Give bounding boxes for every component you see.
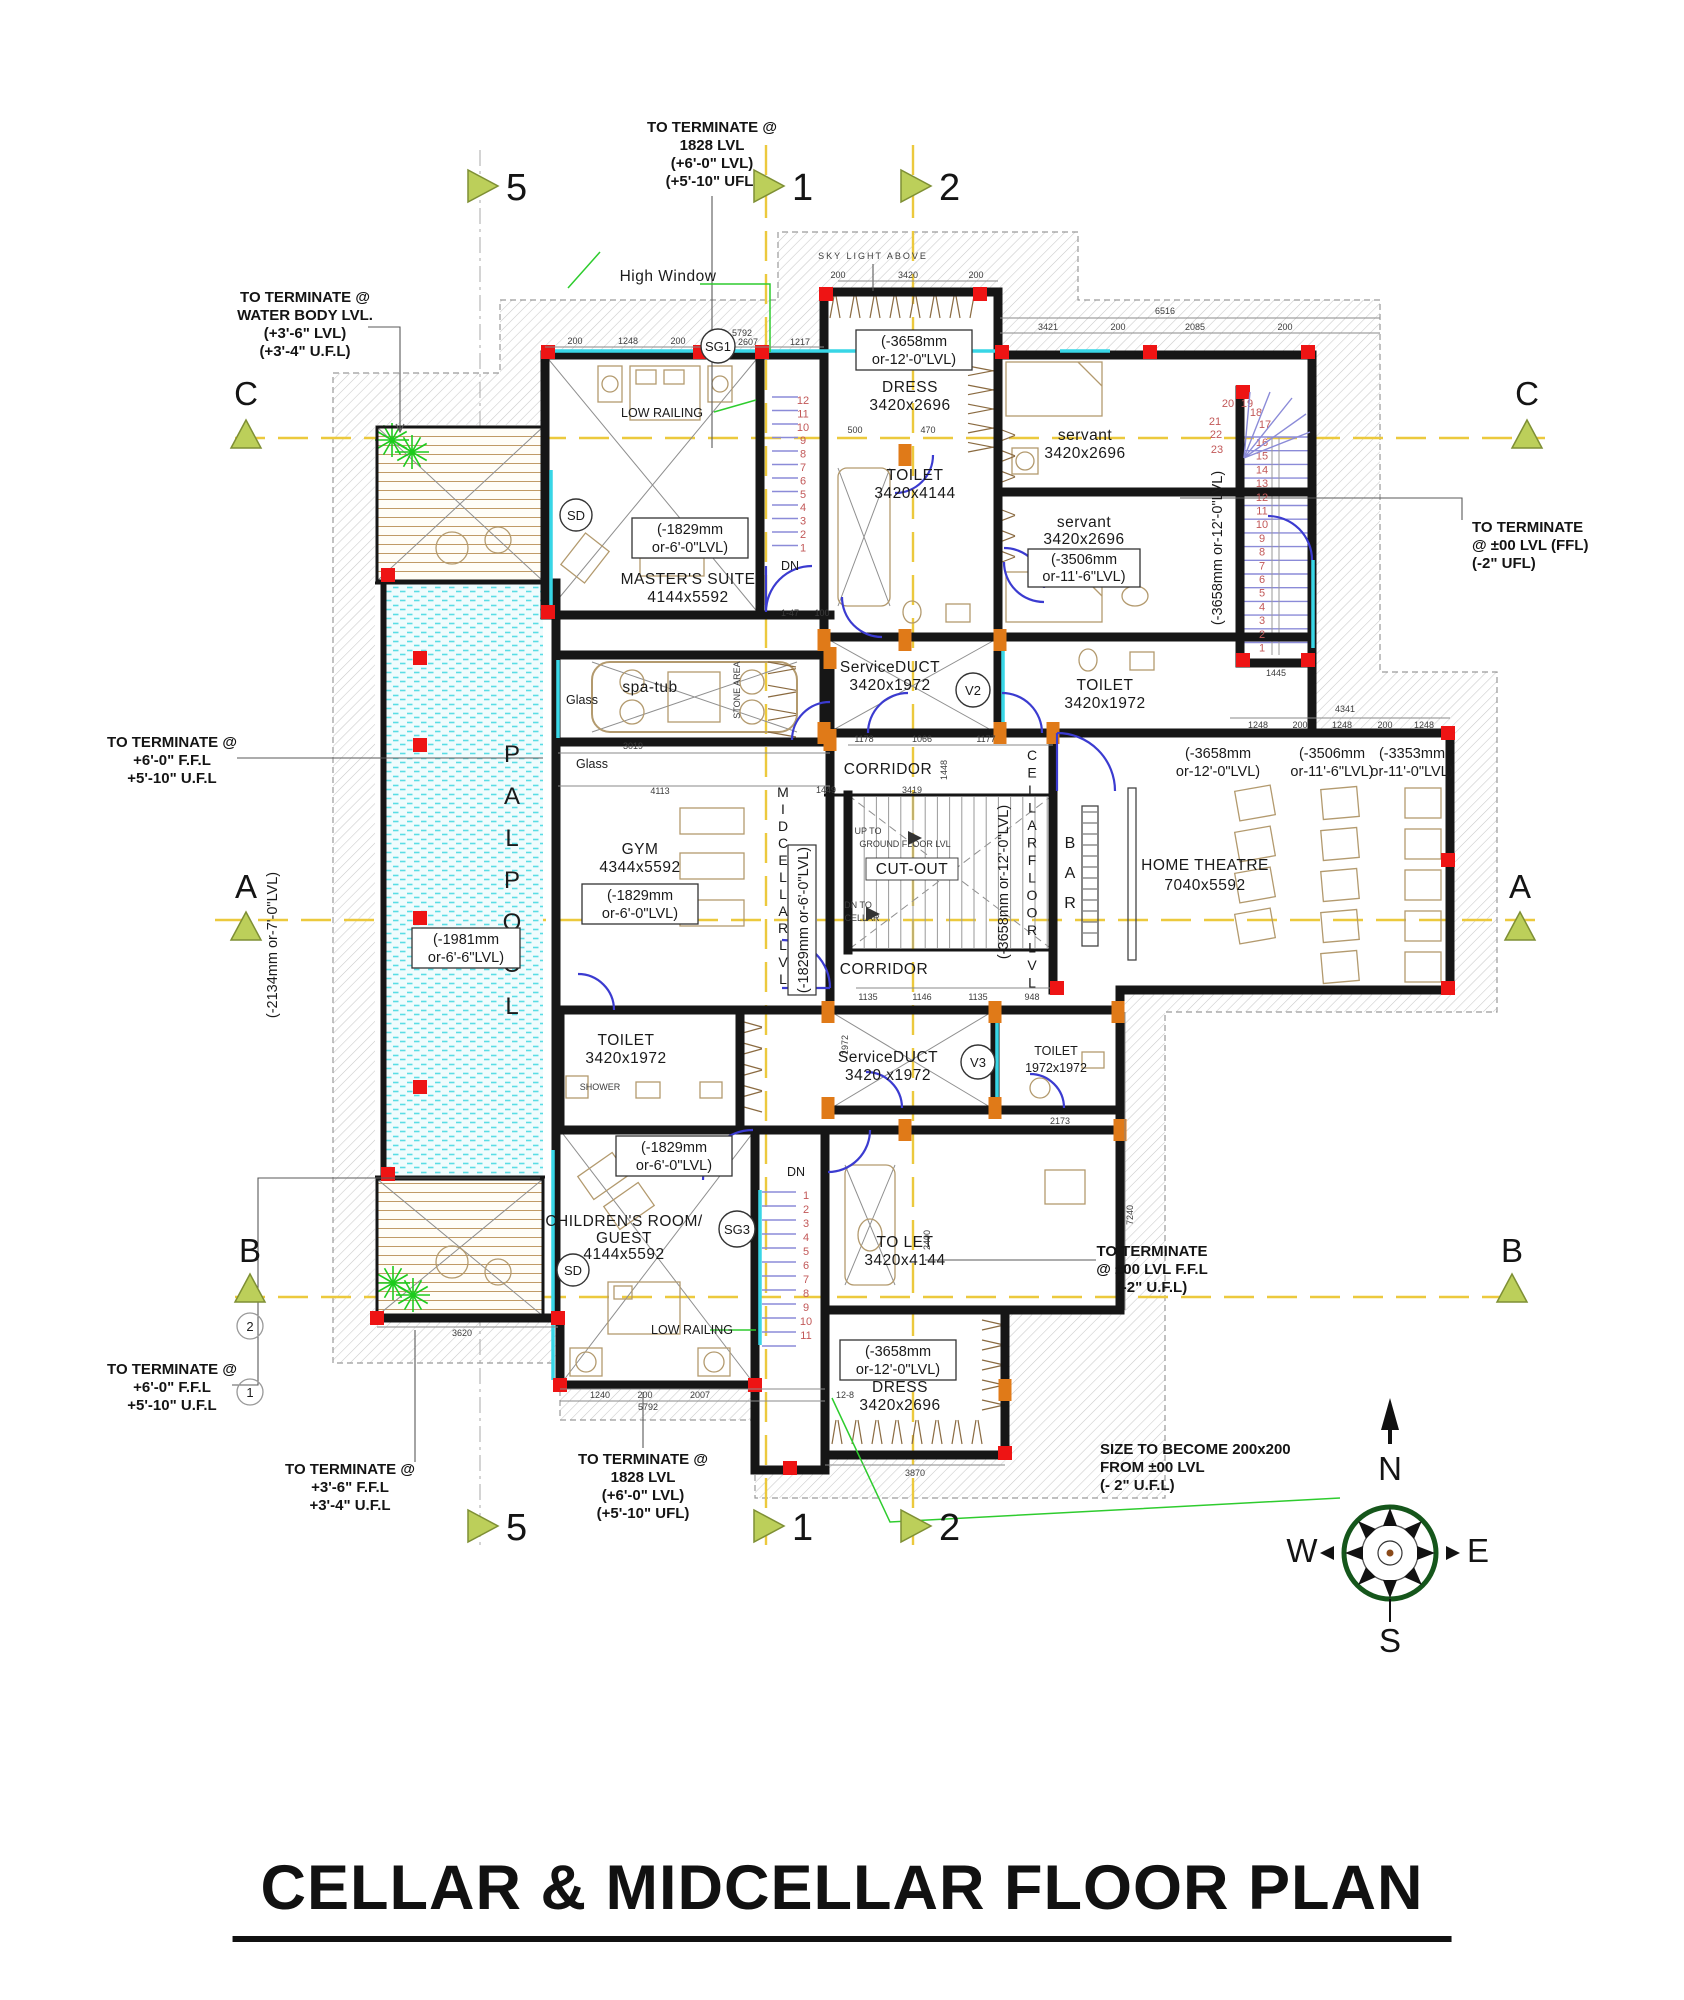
label-toilet-v3: TOILET bbox=[1034, 1044, 1078, 1058]
dim: 3420 bbox=[898, 270, 918, 280]
label-dress-bottom: DRESS bbox=[872, 1379, 928, 1396]
winder-20: 20 bbox=[1222, 398, 1234, 410]
lvl-gym-1: (-1829mm bbox=[607, 888, 673, 904]
dim: 200 bbox=[1292, 720, 1307, 730]
grid-row-c-right: C bbox=[1515, 375, 1539, 412]
ann-size-3: (- 2" U.F.L) bbox=[1100, 1477, 1175, 1494]
dim: 2607 bbox=[738, 337, 758, 347]
dim: 1248 bbox=[618, 336, 638, 346]
label-toilet-mid-dim: 3420x1972 bbox=[1064, 695, 1145, 712]
label-stone-area: STONE AREA bbox=[732, 661, 742, 718]
label-dress-top-dim: 3420x2696 bbox=[869, 397, 950, 414]
grid-col-1-bottom: 1 bbox=[792, 1507, 813, 1549]
label-servant2-dim: 3420x2696 bbox=[1043, 531, 1124, 548]
dim: 1135 bbox=[968, 992, 987, 1002]
label-children-room: CHILDREN'S ROOM/ bbox=[545, 1213, 703, 1230]
dim: 948 bbox=[1024, 992, 1039, 1002]
dim: 3870 bbox=[905, 1468, 925, 1478]
ann-1828-top-4: (+5'-10" UFL) bbox=[666, 173, 759, 190]
lvl-dress-bottom-1: (-3658mm bbox=[865, 1344, 931, 1360]
label-glass-1: Glass bbox=[566, 693, 598, 707]
dim: 4113 bbox=[650, 786, 669, 796]
dim: 12-8 bbox=[836, 1390, 854, 1400]
dim: 2007 bbox=[690, 1390, 710, 1400]
label-up-to-2: GROUND FLOOR LVL bbox=[859, 839, 950, 849]
label-servant2: servant bbox=[1057, 514, 1112, 531]
grid-col-1-top: 1 bbox=[792, 167, 813, 209]
grid-col-5-bottom: 5 bbox=[506, 1507, 527, 1549]
label-children-room2: GUEST bbox=[596, 1230, 652, 1247]
ann-rb00-3: (-2" U.F.L) bbox=[1117, 1279, 1187, 1296]
ann-6ft-mid-1: TO TERMINATE @ bbox=[107, 734, 237, 751]
lvl-dress-bottom-2: or-12'-0"LVL) bbox=[856, 1362, 940, 1378]
label-dn-upper: DN bbox=[781, 559, 799, 573]
label-corridor-lower: CORRIDOR bbox=[840, 961, 928, 978]
ann-1828-bot-1: TO TERMINATE @ bbox=[578, 1451, 708, 1468]
label-dress-top: DRESS bbox=[882, 379, 938, 396]
drawing-title: CELLAR & MIDCELLAR FLOOR PLAN bbox=[233, 1852, 1452, 1942]
dim: 200 bbox=[968, 270, 983, 280]
ann-size-1: SIZE TO BECOME 200x200 bbox=[1100, 1441, 1291, 1458]
ann-right00-3: (-2" UFL) bbox=[1472, 555, 1536, 572]
ann-right00-1: TO TERMINATE bbox=[1472, 519, 1583, 536]
compass: N W E S bbox=[1286, 1398, 1489, 1659]
label-up-to-1: UP TO bbox=[854, 826, 881, 836]
bar-letters: BAR bbox=[1064, 835, 1076, 912]
lvl-dress-top-2: or-12'-0"LVL) bbox=[872, 352, 956, 368]
ann-water-3: (+3'-6" LVL) bbox=[264, 325, 347, 342]
label-sd-bottom: SD bbox=[564, 1263, 582, 1278]
label-gym: GYM bbox=[622, 841, 659, 858]
dim: 1178 bbox=[854, 734, 873, 744]
label-servant1-dim: 3420x2696 bbox=[1044, 445, 1125, 462]
winder-17: 17 bbox=[1259, 419, 1271, 431]
lvl-gym-2: or-6'-0"LVL) bbox=[602, 906, 678, 922]
dim: 200 bbox=[637, 1390, 652, 1400]
lvl-theatre1-2: or-12'-0"LVL) bbox=[1176, 764, 1260, 780]
dim: 1248 bbox=[1248, 720, 1268, 730]
grid-row-b-right: B bbox=[1501, 1232, 1523, 1269]
ann-water-1: TO TERMINATE @ bbox=[240, 289, 370, 306]
dim: 3421 bbox=[1038, 322, 1058, 332]
dim: 1135 bbox=[858, 992, 877, 1002]
label-high-window: High Window bbox=[620, 268, 717, 285]
label-sg3: SG3 bbox=[724, 1222, 750, 1237]
grid-row-a-left: A bbox=[235, 868, 257, 905]
label-sd-top: SD bbox=[567, 508, 585, 523]
ann-rb00-1: TO TERMINATE bbox=[1096, 1243, 1207, 1260]
lvl-theatre2-1: (-3506mm bbox=[1299, 746, 1365, 762]
dim: 200 bbox=[670, 336, 685, 346]
dim: 200 bbox=[1377, 720, 1392, 730]
lvl-pool-left-rot: (-2134mm or-7'-0"LVL) bbox=[265, 872, 281, 1018]
label-sky-light: SKY LIGHT ABOVE bbox=[818, 251, 928, 261]
ann-1828-bot-4: (+5'-10" UFL) bbox=[597, 1505, 690, 1522]
dim: 1248 bbox=[1332, 720, 1352, 730]
label-toilet-top-dim: 3420x4144 bbox=[874, 485, 955, 502]
label-gym-dim: 4344x5592 bbox=[599, 859, 680, 876]
winder-21: 21 bbox=[1209, 416, 1221, 428]
dim: 3620 bbox=[452, 1328, 472, 1338]
grid-col-5-top: 5 bbox=[506, 167, 527, 209]
ann-1828-top-3: (+6'-0" LVL) bbox=[671, 155, 754, 172]
floor-plan-drawing: PALPOOL BAR CELLARFLOORLVL MIDCELLARLVL … bbox=[0, 0, 1684, 2000]
label-serviceduct-top: ServiceDUCT bbox=[840, 659, 940, 676]
dim: 3019 bbox=[623, 741, 643, 751]
label-master-suite: MASTER'S SUITE bbox=[621, 571, 756, 588]
label-toilet-mid: TOILET bbox=[1077, 677, 1134, 694]
grid-row-a-right: A bbox=[1509, 868, 1531, 905]
dim: 1448 bbox=[939, 760, 949, 780]
label-servant1: servant bbox=[1058, 427, 1113, 444]
lvl-theatre3-1: (-3353mm bbox=[1379, 746, 1445, 762]
dim: 200 bbox=[567, 336, 582, 346]
ann-water-2: WATER BODY LVL. bbox=[237, 307, 373, 324]
label-v3: V3 bbox=[970, 1055, 986, 1070]
dim: 1972 bbox=[840, 1035, 850, 1055]
lvl-stairs-rot: (-3658mm or-12'-0"LVL) bbox=[1210, 471, 1226, 625]
dim: 100 bbox=[814, 608, 829, 618]
compass-n: N bbox=[1378, 1450, 1402, 1487]
ann-6ft-bot-1: TO TERMINATE @ bbox=[107, 1361, 237, 1378]
dim: 200 bbox=[1277, 322, 1292, 332]
dim: 1248 bbox=[1414, 720, 1434, 730]
label-spa-tub: spa-tub bbox=[622, 679, 677, 696]
ann-36-1: TO TERMINATE @ bbox=[285, 1461, 415, 1478]
label-toilet-bottom: TOILET bbox=[598, 1032, 655, 1049]
ann-1828-bot-3: (+6'-0" LVL) bbox=[602, 1487, 685, 1504]
label-serviceduct-top-dim: 3420x1972 bbox=[849, 677, 930, 694]
compass-e: E bbox=[1467, 1532, 1489, 1569]
lvl-children-2: or-6'-0"LVL) bbox=[636, 1158, 712, 1174]
compass-w: W bbox=[1286, 1532, 1318, 1569]
winder-19: 19 bbox=[1241, 398, 1253, 410]
dim: 200 bbox=[1110, 322, 1125, 332]
ann-6ft-mid-3: +5'-10" U.F.L bbox=[127, 770, 216, 787]
lvl-pool-2: or-6'-6"LVL) bbox=[428, 950, 504, 966]
grid-col-2-top: 2 bbox=[939, 167, 960, 209]
ann-6ft-mid-2: +6'-0" F.F.L bbox=[133, 752, 211, 769]
grid-col-2-bottom: 2 bbox=[939, 1507, 960, 1549]
ann-36-3: +3'-4" U.F.L bbox=[309, 1497, 390, 1514]
floor-plan-page: PALPOOL BAR CELLARFLOORLVL MIDCELLARLVL … bbox=[0, 0, 1684, 2000]
ann-rb00-2: @ ±00 LVL F.F.L bbox=[1096, 1261, 1208, 1278]
dim: 3419 bbox=[902, 785, 922, 795]
ann-water-4: (+3'-4" U.F.L) bbox=[259, 343, 350, 360]
lvl-midcell-rot: (-1829mm or-6'-0"LVL) bbox=[796, 847, 812, 993]
label-dn-lower: DN bbox=[787, 1165, 805, 1179]
dim: 1177 bbox=[976, 734, 995, 744]
label-serviceduct-bottom: ServiceDUCT bbox=[838, 1049, 938, 1066]
dim: 1066 bbox=[912, 734, 932, 744]
label-glass-2: Glass bbox=[576, 757, 608, 771]
dim: 6516 bbox=[1155, 306, 1175, 316]
dim: 1146 bbox=[912, 992, 931, 1002]
dim: 2400 bbox=[922, 1230, 932, 1250]
label-dress-bottom-dim: 3420x2696 bbox=[859, 1397, 940, 1414]
dim: 500 bbox=[847, 425, 862, 435]
dim: 1449 bbox=[816, 785, 836, 795]
winder-23: 23 bbox=[1211, 444, 1223, 456]
dim: 1217 bbox=[790, 337, 810, 347]
label-low-railing-bottom: LOW RAILING bbox=[651, 1323, 733, 1337]
label-to-let-dim: 3420x4144 bbox=[864, 1252, 945, 1269]
label-shower: SHOWER bbox=[580, 1082, 621, 1092]
cellar-floor-lvl-letters: CELLARFLOORLVL bbox=[1027, 747, 1038, 991]
dim: 5792 bbox=[638, 1402, 658, 1412]
dim: 7240 bbox=[1125, 1205, 1135, 1225]
ann-right00-2: @ ±00 LVL (FFL) bbox=[1472, 537, 1588, 554]
dim: 2173 bbox=[1050, 1116, 1070, 1126]
lvl-dress-top-1: (-3658mm bbox=[881, 334, 947, 350]
ann-36-2: +3'-6" F.F.L bbox=[311, 1479, 389, 1496]
compass-s: S bbox=[1379, 1622, 1401, 1659]
dim: 1445 bbox=[1266, 668, 1286, 678]
ann-1828-bot-2: 1828 LVL bbox=[611, 1469, 676, 1486]
label-children-room-dim: 4144x5592 bbox=[583, 1246, 664, 1263]
label-sg1: SG1 bbox=[705, 339, 731, 354]
lvl-theatre1-1: (-3658mm bbox=[1185, 746, 1251, 762]
ann-6ft-bot-2: +6'-0" F.F.L bbox=[133, 1379, 211, 1396]
lvl-master-2: or-6'-0"LVL) bbox=[652, 540, 728, 556]
dim: 200 bbox=[830, 270, 845, 280]
winder-22: 22 bbox=[1210, 429, 1222, 441]
ann-1828-top-1: TO TERMINATE @ bbox=[647, 119, 777, 136]
lvl-children-1: (-1829mm bbox=[641, 1140, 707, 1156]
label-corridor-upper: CORRIDOR bbox=[844, 761, 932, 778]
label-home-theatre-dim: 7040x5592 bbox=[1164, 877, 1245, 894]
lvl-theatre3-2: or-11'-0"LVL) bbox=[1370, 764, 1453, 780]
lvl-servant2-1: (-3506mm bbox=[1051, 552, 1117, 568]
grid-row-b-left: B bbox=[239, 1232, 261, 1269]
label-cut-out: CUT-OUT bbox=[876, 861, 948, 878]
lvl-theatre2-2: or-11'-6"LVL) bbox=[1290, 764, 1373, 780]
lvl-cellar-rot: (-3658mm or-12'-0"LVL) bbox=[996, 805, 1012, 959]
dim: 4341 bbox=[1335, 704, 1355, 714]
grid-circle-2: 2 bbox=[246, 1319, 253, 1334]
lvl-pool-1: (-1981mm bbox=[433, 932, 499, 948]
label-low-railing-top: LOW RAILING bbox=[621, 406, 703, 420]
label-serviceduct-bottom-dim: 3420 x1972 bbox=[845, 1067, 931, 1084]
grid-row-c-left: C bbox=[234, 375, 258, 412]
dim: 2085 bbox=[1185, 322, 1205, 332]
label-toilet-bottom-dim: 3420x1972 bbox=[585, 1050, 666, 1067]
dim: 1-47 bbox=[781, 608, 799, 618]
label-home-theatre: HOME THEATRE bbox=[1141, 857, 1269, 874]
dim: 470 bbox=[920, 425, 935, 435]
ann-6ft-bot-3: +5'-10" U.F.L bbox=[127, 1397, 216, 1414]
label-master-suite-dim: 4144x5592 bbox=[647, 589, 728, 606]
lvl-master-1: (-1829mm bbox=[657, 522, 723, 538]
grid-circle-1: 1 bbox=[246, 1385, 253, 1400]
label-toilet-top: TOILET bbox=[887, 467, 944, 484]
dim: 1240 bbox=[590, 1390, 610, 1400]
lvl-servant2-2: or-11'-6"LVL) bbox=[1042, 569, 1125, 585]
ann-size-2: FROM ±00 LVL bbox=[1100, 1459, 1205, 1476]
label-toilet-v3-dim: 1972x1972 bbox=[1025, 1061, 1087, 1075]
label-v2: V2 bbox=[965, 683, 981, 698]
ann-1828-top-2: 1828 LVL bbox=[680, 137, 745, 154]
